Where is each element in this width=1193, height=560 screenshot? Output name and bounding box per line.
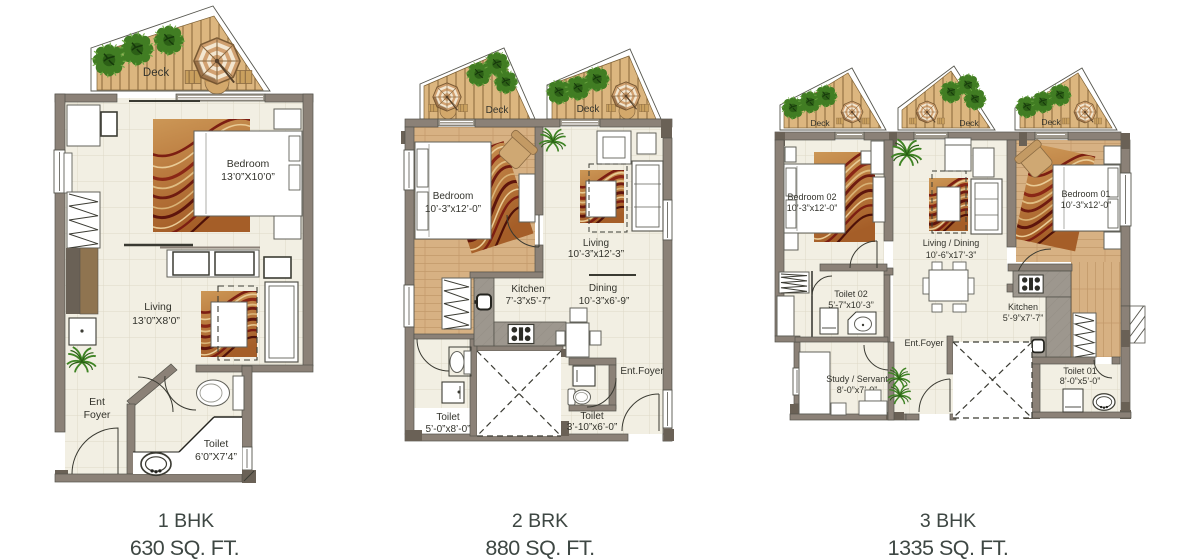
svg-text:880 SQ. FT.: 880 SQ. FT.: [485, 536, 594, 560]
svg-text:Ent: Ent: [89, 396, 105, 408]
svg-text:5’-9”x7’-7”: 5’-9”x7’-7”: [1003, 313, 1044, 323]
svg-text:13’0”X10’0”: 13’0”X10’0”: [221, 171, 275, 183]
svg-text:10’-3”x12’-3”: 10’-3”x12’-3”: [568, 249, 624, 260]
svg-text:Dining: Dining: [589, 283, 617, 294]
svg-text:10’-3”x6’-9”: 10’-3”x6’-9”: [579, 296, 630, 307]
svg-text:8’-0”x5’-0”: 8’-0”x5’-0”: [1060, 376, 1101, 386]
svg-text:1335 SQ. FT.: 1335 SQ. FT.: [888, 536, 1009, 560]
svg-text:Kitchen: Kitchen: [1008, 302, 1038, 312]
svg-text:630 SQ. FT.: 630 SQ. FT.: [130, 536, 239, 560]
svg-text:10’-6”x17’-3”: 10’-6”x17’-3”: [926, 250, 977, 260]
svg-text:Toilet: Toilet: [580, 411, 604, 422]
svg-text:Deck: Deck: [486, 105, 510, 116]
svg-text:6’0”X7’4”: 6’0”X7’4”: [195, 451, 238, 463]
svg-text:3’-10”x6’-0”: 3’-10”x6’-0”: [567, 422, 618, 433]
svg-text:Ent.Foyer: Ent.Foyer: [620, 366, 664, 377]
svg-text:Bedroom: Bedroom: [433, 191, 474, 202]
svg-text:Toilet: Toilet: [436, 412, 460, 423]
svg-text:3 BHK: 3 BHK: [920, 510, 976, 532]
svg-text:Deck: Deck: [1041, 117, 1061, 127]
svg-text:5’-0”x8’-0”: 5’-0”x8’-0”: [425, 424, 470, 435]
svg-text:Study / Servant: Study / Servant: [826, 374, 888, 384]
svg-text:Toilet: Toilet: [204, 438, 229, 450]
svg-text:2 BRK: 2 BRK: [512, 510, 568, 532]
svg-text:Bedroom: Bedroom: [227, 158, 270, 170]
svg-text:Deck: Deck: [959, 118, 979, 128]
svg-text:10’-3”x12’-0”: 10’-3”x12’-0”: [787, 203, 838, 213]
svg-text:Deck: Deck: [143, 67, 169, 79]
svg-text:Living: Living: [583, 238, 609, 249]
svg-text:Living / Dining: Living / Dining: [923, 238, 980, 248]
svg-text:Toilet 02: Toilet 02: [834, 289, 868, 299]
svg-text:Foyer: Foyer: [84, 409, 111, 421]
svg-text:Living: Living: [144, 301, 172, 313]
svg-text:Deck: Deck: [810, 118, 830, 128]
svg-text:Kitchen: Kitchen: [511, 284, 544, 295]
svg-text:Toilet 01: Toilet 01: [1063, 366, 1097, 376]
svg-text:10’-3”x12’-0”: 10’-3”x12’-0”: [1061, 200, 1112, 210]
svg-text:Bedroom 01: Bedroom 01: [1061, 189, 1110, 199]
svg-text:13’0”X8’0”: 13’0”X8’0”: [132, 315, 180, 327]
svg-text:10’-3”x12’-0”: 10’-3”x12’-0”: [425, 204, 481, 215]
svg-text:1 BHK: 1 BHK: [158, 510, 214, 532]
svg-text:Bedroom 02: Bedroom 02: [787, 192, 836, 202]
svg-text:7’-3”x5’-7”: 7’-3”x5’-7”: [505, 296, 550, 307]
svg-text:Ent.Foyer: Ent.Foyer: [904, 338, 943, 348]
svg-text:Deck: Deck: [577, 104, 601, 115]
